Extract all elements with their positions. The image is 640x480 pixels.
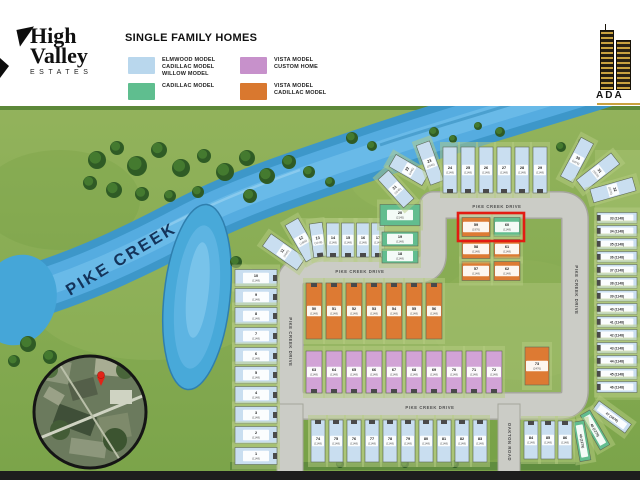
driveway-mark (597, 254, 601, 260)
driveway-mark (483, 189, 489, 193)
lot-sqft: (1148) (350, 442, 358, 446)
driveway-mark (597, 293, 601, 299)
lot-number: 66 (372, 368, 376, 372)
tree-icon (192, 186, 204, 198)
driveway-mark (597, 358, 601, 364)
driveway-mark (597, 306, 601, 312)
driveway-mark (273, 412, 277, 418)
building-tower-icon (600, 30, 614, 90)
lot-label: 40 (1148) (610, 307, 624, 311)
brand-line3: ESTATES (30, 69, 130, 76)
driveway-mark (311, 389, 317, 393)
driveway-mark (273, 333, 277, 339)
driveway-mark (369, 420, 375, 424)
lot-number: 82 (460, 437, 464, 441)
lot-number: 83 (478, 437, 482, 441)
lot-52[interactable]: 52(1148) (343, 278, 365, 344)
lot-number: 62 (505, 267, 509, 271)
lot-71[interactable]: 71(1148) (463, 346, 485, 398)
driveway-mark (597, 228, 601, 234)
lot-29[interactable]: 29(1148) (530, 142, 550, 198)
lot-sqft: (1148) (410, 312, 418, 316)
legend-label: ELMWOOD MODELCADILLAC MODELWILLOW MODEL (162, 57, 215, 78)
tree-icon (164, 190, 176, 202)
edge-logo-fragment (0, 58, 9, 78)
lot-53[interactable]: 53(1148) (363, 278, 385, 344)
lot-number: 20 (398, 211, 402, 215)
tree-icon (20, 336, 36, 352)
driveway-mark (411, 389, 417, 393)
lot-number: 50 (312, 307, 316, 311)
lot-label: 35 (1148) (610, 242, 624, 246)
lot-56[interactable]: 56(1148) (423, 278, 445, 344)
bottom-border-bar (0, 471, 640, 480)
lot-sqft: (1148) (503, 272, 511, 276)
legend-label: VISTA MODELCADILLAC MODEL (274, 83, 326, 97)
tree-icon (172, 159, 190, 177)
lot-69[interactable]: 69(1148) (423, 346, 445, 398)
lot-67[interactable]: 67(1148) (383, 346, 405, 398)
lot-number: 51 (332, 307, 336, 311)
lot-sqft: (1148) (368, 442, 376, 446)
lot-number: 55 (412, 307, 416, 311)
driveway-mark (351, 389, 357, 393)
driveway-mark (423, 420, 429, 424)
lot-label: 45 (1148) (610, 372, 624, 376)
lot-sqft: (1148) (472, 250, 480, 254)
lot-sqft: (1148) (458, 442, 466, 446)
legend-item: ELMWOOD MODELCADILLAC MODELWILLOW MODEL (128, 57, 215, 78)
lot-label: 36 (1148) (610, 255, 624, 259)
driveway-mark (315, 420, 321, 424)
lot-number: 26 (484, 166, 488, 170)
legend-swatch (128, 83, 155, 100)
driveway-mark (597, 215, 601, 221)
lot-number: 78 (388, 437, 392, 441)
lot-28[interactable]: 28(1148) (512, 142, 532, 198)
driveway-mark (387, 420, 393, 424)
lot-70[interactable]: 70(1148) (443, 346, 465, 398)
lot-number: 75 (334, 437, 338, 441)
tree-icon (449, 135, 457, 143)
lot-sqft: (1148) (370, 312, 378, 316)
tree-icon (367, 141, 377, 151)
driveway-mark (597, 267, 601, 273)
driveway-mark (273, 294, 277, 300)
driveway-mark (491, 389, 497, 393)
lot-number: 57 (474, 267, 478, 271)
lot-sqft: (1148) (410, 373, 418, 377)
tree-icon (88, 151, 106, 169)
driveway-mark (345, 253, 351, 257)
lot-number: 63 (312, 368, 316, 372)
brand-line2: Valley (30, 46, 130, 66)
lot-24[interactable]: 24(1148) (440, 142, 460, 198)
driveway-mark (351, 420, 357, 424)
tree-icon (83, 176, 97, 190)
street-name-label: OAKTON ROAD (507, 423, 512, 461)
street-name-label: PIKE CREEK DRIVE (574, 265, 579, 314)
lot-sqft: (1148) (344, 241, 352, 245)
lot-label: 42 (1148) (610, 333, 624, 337)
driveway-mark (331, 389, 337, 393)
tree-icon (282, 155, 296, 169)
tree-icon (243, 189, 257, 203)
lot-label: 39 (1148) (610, 294, 624, 298)
lot-sqft: (1148) (503, 228, 511, 232)
lot-46[interactable]: 46 (1148) (594, 377, 640, 398)
tree-icon (127, 156, 147, 176)
driveway-mark (519, 189, 525, 193)
driveway-mark (459, 420, 465, 424)
driveway-mark (371, 283, 377, 287)
tree-icon (474, 122, 482, 130)
lot-sqft: (1148) (440, 442, 448, 446)
driveway-mark (562, 421, 568, 425)
header: High Valley ESTATES SINGLE FAMILY HOMES … (0, 0, 640, 106)
driveway-mark (311, 283, 317, 287)
legend-label: CADILLAC MODEL (162, 83, 214, 90)
driveway-mark (431, 283, 437, 287)
lot-number: 27 (502, 166, 506, 170)
lot-63[interactable]: 63(1148) (303, 346, 325, 398)
lot-sqft: (1148) (396, 257, 404, 261)
lot-label: 37 (1148) (610, 268, 624, 272)
lot-83[interactable]: 83(1148) (470, 415, 490, 467)
lot-number: 60 (505, 223, 509, 227)
lot-number: 2 (255, 431, 257, 435)
lot-number: 6 (255, 352, 257, 356)
lot-sqft: (1148) (350, 373, 358, 377)
driveway-mark (447, 189, 453, 193)
driveway-mark (597, 241, 601, 247)
lot-sqft: (1148) (329, 241, 337, 245)
legend-label: VISTA MODELCUSTOM HOME (274, 57, 318, 71)
lot-73[interactable]: 73(2476) (522, 342, 552, 390)
lot-number: 56 (432, 307, 436, 311)
lot-sqft: (1148) (252, 317, 260, 321)
lot-number: 1 (255, 452, 257, 456)
lot-number: 81 (442, 437, 446, 441)
lot-64[interactable]: 64(1148) (323, 346, 345, 398)
lot-50[interactable]: 50(1148) (303, 278, 325, 344)
lot-59[interactable]: 59(1976) (459, 213, 493, 242)
lot-sqft: (1148) (252, 396, 260, 400)
driveway-mark (333, 420, 339, 424)
driveway-mark (273, 392, 277, 398)
lot-number: 10 (254, 274, 258, 278)
lot-sqft: (1148) (470, 373, 478, 377)
street-name-label: PIKE CREEK DRIVE (288, 317, 293, 366)
lot-sqft: (1148) (490, 373, 498, 377)
lot-62[interactable]: 62(1148) (491, 257, 523, 286)
tree-icon (106, 182, 122, 198)
driveway-mark (360, 253, 366, 257)
lot-number: 77 (370, 437, 374, 441)
driveway-mark (441, 420, 447, 424)
driveway-mark (597, 280, 601, 286)
lot-sqft: (1148) (561, 441, 569, 445)
driveway-mark (331, 283, 337, 287)
lot-number: 15 (346, 236, 350, 240)
lot-72[interactable]: 72(1148) (483, 346, 505, 398)
lot-sqft: (1148) (330, 373, 338, 377)
lot-sqft: (1148) (430, 373, 438, 377)
lot-number: 67 (392, 368, 396, 372)
driveway-mark (351, 283, 357, 287)
legend: SINGLE FAMILY HOMES ELMWOOD MODELCADILLA… (125, 32, 385, 44)
driveway-mark (451, 389, 457, 393)
driveway-mark (597, 319, 601, 325)
lot-label: 44 (1148) (610, 359, 624, 363)
tree-icon (216, 163, 234, 181)
legend-swatch (240, 83, 267, 100)
lot-sqft: (1148) (252, 457, 260, 461)
lot-number: 8 (255, 312, 257, 316)
lot-label: 34 (1148) (610, 229, 624, 233)
driveway-mark (391, 389, 397, 393)
lot-sqft: (1148) (482, 171, 490, 175)
lot-number: 68 (412, 368, 416, 372)
lot-81[interactable]: 81(1148) (434, 415, 454, 467)
lot-26[interactable]: 26(1148) (476, 142, 496, 198)
legend-title: SINGLE FAMILY HOMES (125, 32, 385, 44)
lot-sqft: (1148) (446, 171, 454, 175)
driveway-mark (471, 389, 477, 393)
lot-sqft: (1148) (527, 441, 535, 445)
lot-27[interactable]: 27(1148) (494, 142, 514, 198)
lot-25[interactable]: 25(1148) (458, 142, 478, 198)
lot-65[interactable]: 65(1148) (343, 346, 365, 398)
driveway-mark (317, 252, 323, 257)
lot-sqft: (1148) (503, 250, 511, 254)
tree-icon (303, 166, 315, 178)
driveway-mark (597, 371, 601, 377)
lot-86[interactable]: 86(1148) (555, 416, 575, 464)
lot-number: 28 (520, 166, 524, 170)
lot-label: 33 (1148) (610, 216, 624, 220)
tree-icon (197, 149, 211, 163)
lot-sqft: (2476) (533, 367, 541, 371)
lot-sqft: (1148) (386, 442, 394, 446)
lot-sqft: (1976) (472, 228, 480, 232)
lot-number: 70 (452, 368, 456, 372)
lot-sqft: (1148) (396, 240, 404, 244)
lot-sqft: (1148) (476, 442, 484, 446)
lot-sqft: (1148) (252, 436, 260, 440)
lot-label: 46 (1148) (610, 385, 624, 389)
lot-number: 71 (472, 368, 476, 372)
legend-swatch (240, 57, 267, 74)
lot-sqft: (1148) (370, 373, 378, 377)
aerial-inset[interactable] (34, 356, 146, 468)
driveway-mark (273, 432, 277, 438)
lot-sqft: (1148) (252, 279, 260, 283)
tree-icon (259, 168, 275, 184)
lot-sqft: (1148) (332, 442, 340, 446)
tree-icon (43, 350, 57, 364)
lot-number: 65 (352, 368, 356, 372)
lot-1[interactable]: 1(1148) (232, 443, 280, 470)
lot-sqft: (1148) (310, 373, 318, 377)
lot-sqft: (1148) (430, 312, 438, 316)
lot-number: 76 (352, 437, 356, 441)
lot-number: 80 (424, 437, 428, 441)
lot-sqft: (1148) (500, 171, 508, 175)
lot-number: 25 (466, 166, 470, 170)
driveway-mark (273, 453, 277, 459)
lot-number: 61 (505, 245, 509, 249)
lot-sqft: (1148) (252, 337, 260, 341)
builder-logo: ADA (596, 28, 640, 106)
lot-number: 52 (352, 307, 356, 311)
lot-number: 86 (563, 436, 567, 440)
tree-icon (495, 127, 505, 137)
driveway-mark (273, 275, 277, 281)
lot-label: 43 (1148) (610, 346, 624, 350)
driveway-mark (431, 389, 437, 393)
tree-icon (325, 177, 335, 187)
lot-68[interactable]: 68(1148) (403, 346, 425, 398)
lot-78[interactable]: 78(1148) (380, 415, 400, 467)
lot-number: 53 (372, 307, 376, 311)
tree-icon (346, 132, 358, 144)
legend-item: VISTA MODELCADILLAC MODEL (240, 83, 326, 100)
lot-number: 3 (255, 411, 257, 415)
tree-icon (556, 142, 566, 152)
lot-number: 69 (432, 368, 436, 372)
lot-77[interactable]: 77(1148) (362, 415, 382, 467)
lot-number: 58 (474, 245, 478, 249)
street-name-label: PIKE CREEK DRIVE (472, 204, 521, 209)
driveway-mark (537, 189, 543, 193)
lot-75[interactable]: 75(1148) (326, 415, 346, 467)
lot-54[interactable]: 54(1148) (383, 278, 405, 344)
lot-number: 16 (361, 236, 365, 240)
lot-number: 18 (398, 252, 402, 256)
driveway-mark (528, 421, 534, 425)
lot-sqft: (1148) (310, 312, 318, 316)
lot-label: 38 (1148) (610, 281, 624, 285)
tree-icon (135, 187, 149, 201)
brand-logo: High Valley ESTATES (30, 26, 130, 76)
tree-icon (239, 150, 255, 166)
lot-sqft: (1148) (350, 312, 358, 316)
lot-82[interactable]: 82(1148) (452, 415, 472, 467)
legend-item: VISTA MODELCUSTOM HOME (240, 57, 318, 74)
driveway-mark (597, 345, 601, 351)
lot-sqft: (1148) (390, 312, 398, 316)
driveway-mark (597, 332, 601, 338)
lot-sqft: (1148) (464, 171, 472, 175)
lot-76[interactable]: 76(1148) (344, 415, 364, 467)
lot-sqft: (1148) (518, 171, 526, 175)
lot-sqft: (2145) (396, 216, 404, 220)
lot-74[interactable]: 74(1148) (308, 415, 328, 467)
lot-sqft: (1148) (450, 373, 458, 377)
lot-sqft: (1148) (314, 442, 322, 446)
builder-accent-bar (597, 103, 640, 105)
lot-sqft: (1148) (252, 357, 260, 361)
driveway-mark (273, 353, 277, 359)
lot-number: 9 (255, 293, 257, 297)
lot-number: 7 (255, 332, 257, 336)
lot-number: 73 (535, 362, 539, 366)
builder-name: ADA (596, 90, 624, 101)
driveway-mark (545, 421, 551, 425)
driveway-mark (465, 189, 471, 193)
lot-sqft: (1148) (359, 241, 367, 245)
lot-sqft: (1148) (390, 373, 398, 377)
lot-79[interactable]: 79(1148) (398, 415, 418, 467)
lot-51[interactable]: 51(1148) (323, 278, 345, 344)
lot-66[interactable]: 66(1148) (363, 346, 385, 398)
driveway-mark (597, 384, 601, 390)
lot-number: 59 (474, 223, 478, 227)
driveway-mark (273, 372, 277, 378)
lot-number: 72 (492, 368, 496, 372)
lot-number: 5 (255, 371, 257, 375)
lot-number: 19 (398, 235, 402, 239)
lot-sqft: (1148) (544, 441, 552, 445)
building-tower-icon (616, 40, 631, 90)
lot-sqft: (1148) (472, 272, 480, 276)
legend-item: CADILLAC MODEL (128, 83, 214, 100)
lot-sqft: (1148) (536, 171, 544, 175)
lot-sqft: (1148) (422, 442, 430, 446)
driveway-mark (405, 420, 411, 424)
street-name-label: PIKE CREEK DRIVE (405, 405, 454, 410)
lot-sqft: (1148) (252, 416, 260, 420)
driveway-mark (391, 283, 397, 287)
lot-sqft: (1148) (252, 298, 260, 302)
driveway-mark (411, 283, 417, 287)
lot-sqft: (1148) (252, 376, 260, 380)
lot-number: 29 (538, 166, 542, 170)
lot-55[interactable]: 55(1148) (403, 278, 425, 344)
tree-icon (151, 142, 167, 158)
driveway-mark (371, 389, 377, 393)
street-name-label: PIKE CREEK DRIVE (335, 269, 384, 274)
lot-number: 79 (406, 437, 410, 441)
lot-sqft: (1148) (404, 442, 412, 446)
tree-icon (8, 355, 20, 367)
driveway-mark (501, 189, 507, 193)
lot-sqft: (1148) (330, 312, 338, 316)
lot-19[interactable]: 19(1148) (379, 227, 421, 251)
lot-80[interactable]: 80(1148) (416, 415, 436, 467)
driveway-mark (330, 253, 336, 257)
driveway-mark (477, 420, 483, 424)
tree-icon (110, 141, 124, 155)
lot-label: 41 (1148) (610, 320, 624, 324)
driveway-mark (273, 313, 277, 319)
lot-number: 85 (546, 436, 550, 440)
legend-swatch (128, 57, 155, 74)
